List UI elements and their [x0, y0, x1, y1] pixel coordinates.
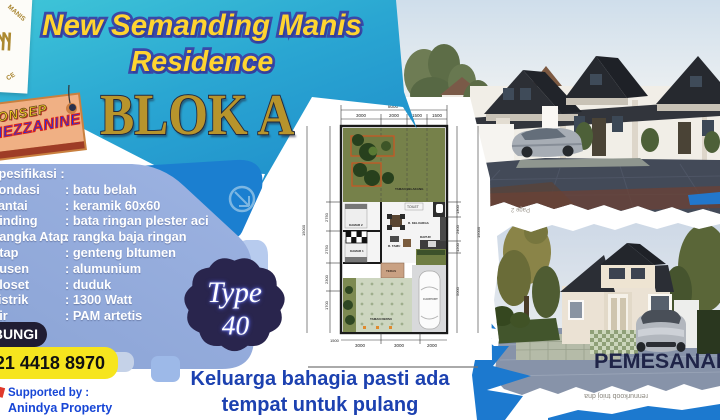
svg-text:5000: 5000 [455, 286, 460, 296]
svg-text:CARPORT: CARPORT [423, 297, 438, 301]
svg-text:1500: 1500 [330, 338, 340, 343]
svg-text:1500: 1500 [432, 113, 443, 118]
svg-text:1200: 1200 [455, 242, 460, 252]
svg-text:1300: 1300 [455, 204, 460, 214]
svg-text:Type: Type [207, 277, 262, 309]
svg-text:3000: 3000 [355, 343, 366, 348]
svg-text:15000: 15000 [476, 226, 481, 238]
svg-text:3000: 3000 [394, 343, 405, 348]
svg-text:2400: 2400 [455, 224, 460, 234]
svg-text:TAMAN DEPAN: TAMAN DEPAN [370, 317, 392, 321]
svg-text:2000: 2000 [427, 343, 438, 348]
svg-text:40: 40 [222, 310, 250, 340]
svg-text:1700: 1700 [324, 300, 329, 310]
svg-text:rennurkoob tnioj dna: rennurkoob tnioj dna [584, 392, 648, 399]
